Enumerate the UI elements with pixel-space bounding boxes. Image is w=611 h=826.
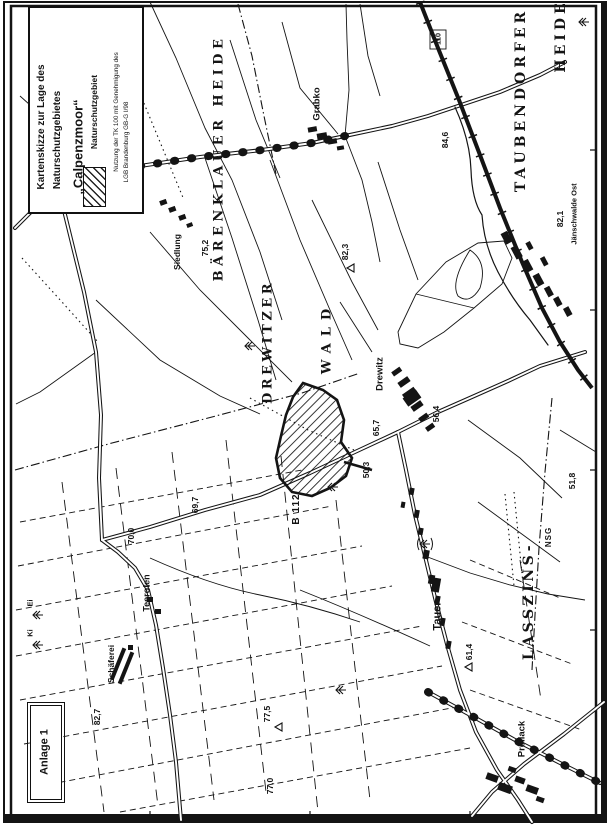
place-label-jaenschwalde-ost: Jänschwalde Ost	[570, 183, 578, 244]
place-label-grabko: Grabko	[312, 87, 322, 120]
place-label-tauer: Tauer	[433, 601, 444, 630]
road-b112-east	[398, 352, 585, 432]
elevation-61-4: 61,4	[465, 644, 474, 661]
elevation-82-1: 82,1	[556, 211, 565, 228]
elevation-84-6: 84,6	[441, 132, 450, 149]
legend-box: Kartenskizze zur Lage des Naturschutzgeb…	[28, 6, 144, 214]
place-label-schaeferei: Schäferei	[107, 645, 116, 683]
legend-title-line3: „Calpenzmoor“	[72, 99, 85, 194]
elevation-75-2: 75,2	[201, 240, 210, 257]
legend-swatch-label: Naturschutzgebiet	[90, 75, 99, 149]
area-label-baerenklauer-heide: BÄRENKLAUER HEIDE	[213, 35, 226, 282]
elevation-56-4: 56,4	[432, 406, 441, 423]
legend-nsg-swatch-icon	[83, 167, 106, 207]
area-label-heide: HEIDE	[554, 0, 568, 73]
nsg-label: NSG	[545, 527, 553, 547]
nsg-area-polygon	[276, 383, 372, 496]
legend-note-line1: Nutzung der TK 100 mit Genehmigung des	[114, 52, 120, 172]
elevation-77-0: 77,0	[266, 778, 275, 795]
legend-title-line1: Kartenskizze zur Lage des	[37, 64, 47, 189]
legend-title-line2: Naturschutzgebietes	[53, 91, 63, 189]
tree-type-label-ei: Ei	[26, 599, 34, 606]
elevation-70-0: 70,0	[127, 528, 136, 545]
elevation-77-5: 77,5	[263, 706, 272, 723]
elevation-50-3: 50,3	[362, 462, 371, 479]
elevation-82-3: 82,3	[341, 244, 350, 261]
elevation-65-7: 65,7	[372, 420, 381, 437]
area-label-lasszins: LASSZINS-	[522, 542, 536, 660]
place-label-teerofen: Teerofen	[143, 574, 152, 611]
tree-type-label-ki: Ki	[26, 629, 34, 637]
road-label-110: 110	[434, 33, 442, 45]
annotation-box: Anlage 1	[30, 705, 62, 800]
scanned-map-page: BÄRENKLAUER HEIDE DREWITZER WALD TAUBEND…	[0, 0, 611, 826]
place-label-drewitz: Drewitz	[375, 357, 385, 391]
road-label-b112: B 112	[292, 493, 302, 524]
elevation-51-8: 51,8	[568, 473, 577, 490]
elevation-82-7: 82,7	[93, 709, 102, 726]
annotation-box-label: Anlage 1	[40, 729, 51, 775]
elevation-69-7: 69,7	[191, 497, 200, 514]
place-label-preilack: Preilack	[517, 721, 527, 757]
enclosure-outline	[398, 241, 512, 348]
road-b112-west	[102, 432, 398, 540]
legend-note-line2: LGB Brandenburg GB-G I/98	[124, 102, 130, 183]
place-label-siedlung: Siedlung	[173, 234, 182, 270]
road-station-loop	[455, 107, 548, 345]
area-label-wald: WALD	[321, 302, 334, 374]
area-label-drewitzer: DREWITZER	[262, 280, 275, 404]
area-label-taubendorfer: TAUBENDORFER	[514, 8, 528, 192]
